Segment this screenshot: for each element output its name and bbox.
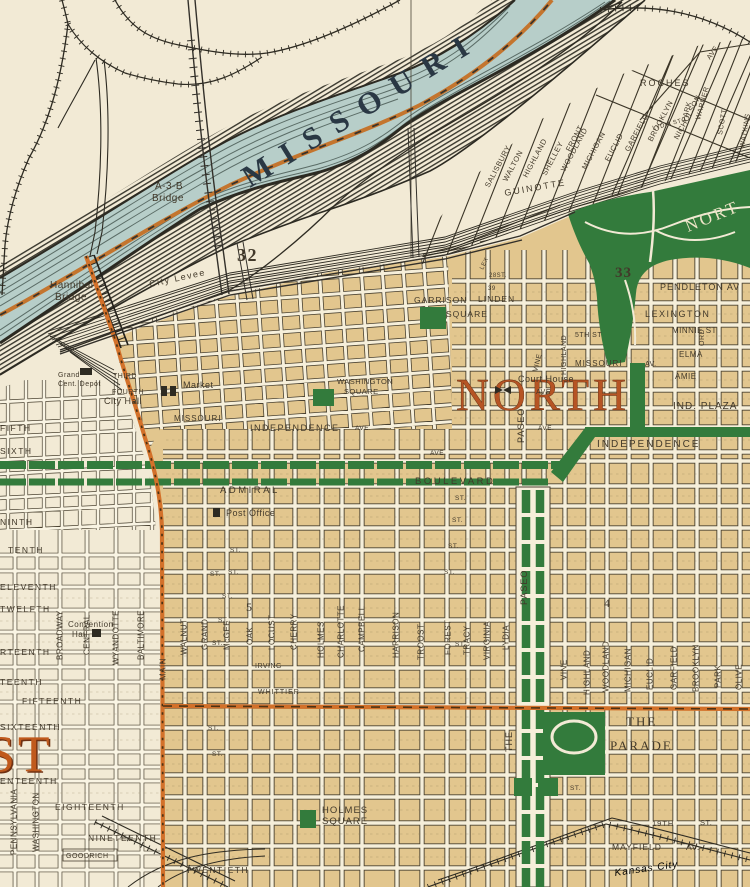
svg-text:PARK: PARK [714,665,723,688]
svg-text:THE: THE [504,731,514,752]
svg-text:THIRD: THIRD [113,373,137,380]
svg-text:CAMPBELL: CAMPBELL [358,605,367,652]
svg-text:OAK: OAK [246,626,255,645]
svg-text:MICHIGAN: MICHIGAN [624,648,633,692]
svg-text:TWENTIETH: TWENTIETH [186,865,249,875]
svg-text:Post Office: Post Office [226,508,275,518]
svg-text:MISSOURI: MISSOURI [575,359,623,368]
svg-text:ST.: ST. [208,725,219,732]
svg-text:AVE.: AVE. [538,425,554,432]
svg-text:ST.: ST. [230,547,241,554]
svg-text:HIGHLAND: HIGHLAND [583,650,592,695]
svg-text:BROADWAY: BROADWAY [56,610,65,660]
svg-text:Market: Market [183,380,214,390]
svg-text:AVE: AVE [536,389,551,396]
svg-text:BALTIMORE: BALTIMORE [137,610,146,660]
svg-text:5TH ST: 5TH ST [575,332,602,339]
svg-text:BROOKLYN: BROOKLYN [692,644,701,692]
svg-text:VINE: VINE [560,659,569,680]
svg-text:FIFTEENTH: FIFTEENTH [22,696,82,706]
svg-text:NINTH: NINTH [0,517,33,527]
svg-text:GARFIELD: GARFIELD [670,646,679,690]
svg-text:SIXTH: SIXTH [0,446,33,456]
svg-text:Bridge: Bridge [55,292,87,303]
svg-text:WHITTIER: WHITTIER [258,689,300,696]
svg-text:ST.: ST. [210,571,221,578]
svg-text:ST.: ST. [444,569,455,576]
svg-text:SQUARE: SQUARE [446,309,488,319]
svg-text:ORD: ORD [699,329,706,346]
svg-text:TROOST: TROOST [417,624,426,660]
svg-text:MINNIE ST: MINNIE ST [672,326,717,335]
svg-text:ST.: ST. [228,569,239,576]
svg-text:28ST.: 28ST. [489,273,507,279]
svg-text:SQUARE: SQUARE [322,816,368,827]
svg-text:ST.: ST. [222,593,233,600]
svg-text:WALNUT: WALNUT [180,619,189,655]
svg-text:GARRISON: GARRISON [414,295,467,305]
svg-text:AVE.: AVE. [355,425,371,432]
svg-text:4: 4 [604,596,611,610]
svg-text:FOREST: FOREST [444,620,453,655]
svg-text:PENDLETON AV: PENDLETON AV [660,282,740,292]
svg-text:MISSOURI: MISSOURI [174,414,222,423]
svg-text:SQUARE: SQUARE [344,387,379,396]
svg-text:Grand: Grand [58,372,80,379]
svg-text:CHERRY: CHERRY [290,613,299,650]
svg-text:ST.: ST. [212,640,223,647]
svg-text:EIGHTEENTH: EIGHTEENTH [55,802,125,812]
svg-text:LYDIA: LYDIA [502,625,511,650]
svg-text:ST.: ST. [448,543,459,550]
svg-text:AVE.: AVE. [430,450,446,457]
svg-text:TENTH: TENTH [8,545,44,555]
svg-text:CENTRAL: CENTRAL [83,614,92,655]
svg-text:OLIVE: OLIVE [735,664,744,690]
svg-text:EUCLID: EUCLID [646,658,655,690]
svg-text:ST.: ST. [218,617,229,624]
svg-text:AV.: AV. [645,361,657,368]
svg-text:PENNSYLVANIA: PENNSYLVANIA [10,789,19,855]
svg-text:32: 32 [237,245,258,265]
svg-text:HOLMES: HOLMES [317,621,326,658]
svg-text:VIRGINIA: VIRGINIA [483,621,492,660]
svg-text:Cent. Depot: Cent. Depot [58,381,101,388]
svg-text:5: 5 [246,600,253,614]
svg-text:GRAND: GRAND [201,619,210,650]
svg-text:WASHINGTON: WASHINGTON [32,792,41,852]
svg-text:IND. PLAZA: IND. PLAZA [673,401,737,412]
svg-text:ST.: ST. [570,785,581,792]
svg-text:FIFTH: FIFTH [0,423,32,433]
svg-text:ELEVENTH: ELEVENTH [0,582,57,592]
svg-text:NINETEENTH: NINETEENTH [88,833,157,843]
svg-text:City Hall: City Hall [104,396,142,406]
svg-text:PASEO: PASEO [516,408,526,443]
svg-text:INDEPENDENCE: INDEPENDENCE [250,423,340,433]
svg-text:GOODRICH: GOODRICH [66,853,109,860]
svg-text:WOODLAND: WOODLAND [602,641,611,692]
svg-text:ST.: ST. [455,495,466,502]
svg-text:AMIE: AMIE [675,372,697,381]
svg-text:ENTEENTH: ENTEENTH [0,776,58,786]
svg-text:33: 33 [615,265,632,281]
svg-text:ADMIRAL: ADMIRAL [220,485,280,496]
svg-text:LINDEN: LINDEN [478,294,515,304]
svg-text:Hannibal: Hannibal [50,280,93,291]
svg-text:WYANDOTTE: WYANDOTTE [112,610,121,665]
svg-text:PARADE: PARADE [610,738,673,753]
svg-text:WASHINGTON: WASHINGTON [337,377,393,386]
svg-text:HIGHLAND: HIGHLAND [561,335,568,375]
svg-text:PASEO: PASEO [519,570,529,605]
svg-text:HARRISON: HARRISON [392,612,401,658]
svg-text:INDEPENDENCE: INDEPENDENCE [597,439,700,450]
svg-text:39: 39 [488,286,496,292]
svg-text:ELMA: ELMA [679,350,703,359]
svg-text:ST.: ST. [455,641,466,648]
svg-text:MAIN: MAIN [159,658,168,680]
svg-text:SIXTEENTH: SIXTEENTH [0,722,61,732]
svg-text:ST.: ST. [452,517,463,524]
svg-text:AV.: AV. [686,842,700,852]
svg-text:ROCHES: ROCHES [640,78,691,88]
svg-text:HOLMES: HOLMES [322,805,368,816]
svg-text:LEXINGTON: LEXINGTON [645,309,710,319]
svg-text:McGEE: McGEE [223,620,232,650]
svg-text:ST.: ST. [212,751,223,758]
svg-text:TEENTH: TEENTH [0,677,43,687]
svg-text:THE: THE [626,714,657,729]
svg-text:RTEENTH: RTEENTH [0,647,51,657]
svg-text:19TH: 19TH [652,819,674,828]
svg-text:TWELFTH: TWELFTH [0,604,51,614]
svg-text:A-3-B: A-3-B [155,181,183,192]
svg-text:MAYFIELD: MAYFIELD [612,842,662,852]
svg-text:Bridge: Bridge [152,193,184,204]
svg-text:IRVING: IRVING [255,663,282,670]
svg-text:ST.: ST. [700,818,712,827]
svg-text:BOULEVARD: BOULEVARD [415,476,495,487]
svg-text:FOURTH: FOURTH [112,389,144,396]
svg-text:LOCUST: LOCUST [268,615,277,650]
svg-text:CHARLOTTE: CHARLOTTE [337,605,346,658]
